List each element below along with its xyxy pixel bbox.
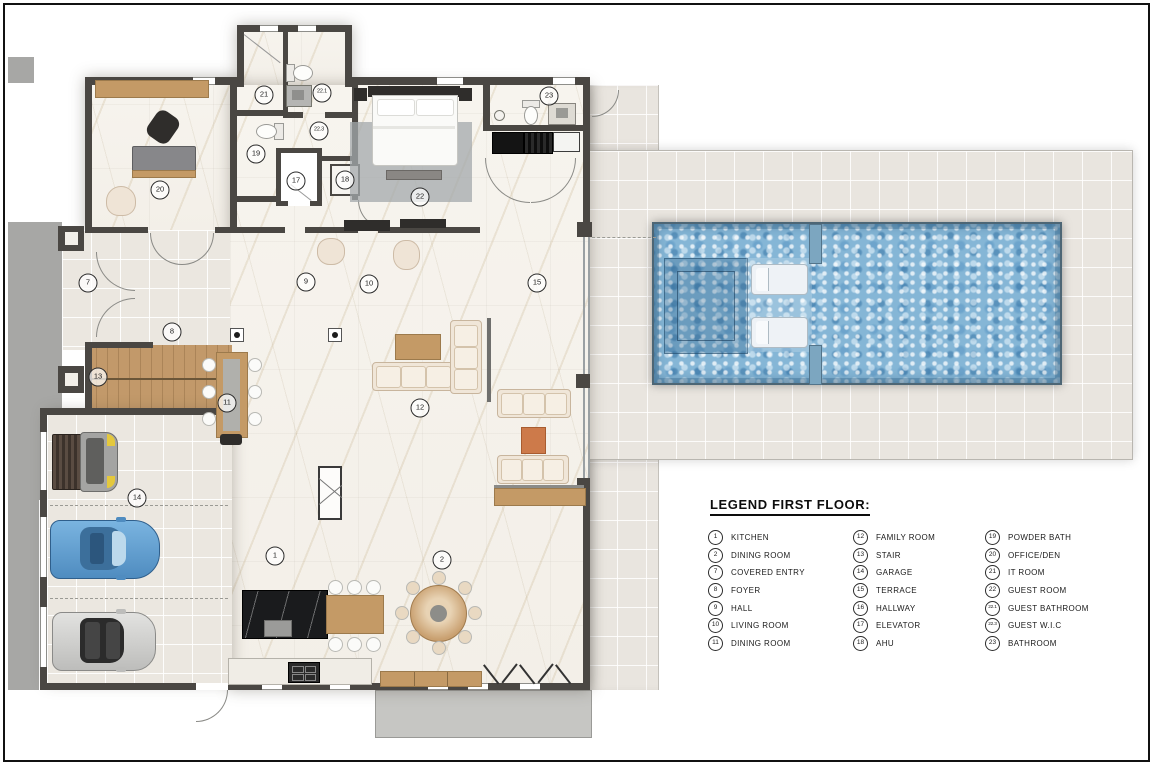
legend-item: 15TERRACE <box>853 582 935 600</box>
legend-badge: 15 <box>853 583 868 598</box>
legend-item: 2DINING ROOM <box>708 547 805 565</box>
guest-bed <box>368 86 460 166</box>
legend-badge: 17 <box>853 618 868 633</box>
room-marker-9: 9 <box>297 273 316 292</box>
legend-item: 22.3GUEST W.I.C <box>985 617 1089 635</box>
legend-badge: 22 <box>985 583 1000 598</box>
silver-car <box>52 612 154 669</box>
legend-item: 1KITCHEN <box>708 529 805 547</box>
legend-label: GUEST BATHROOM <box>1008 604 1089 613</box>
legend-label: LIVING ROOM <box>731 621 789 630</box>
legend-badge: 13 <box>853 548 868 563</box>
cooktop <box>288 662 320 683</box>
room-marker-23: 23 <box>540 87 559 106</box>
utility-truck <box>52 432 116 490</box>
legend-label: HALL <box>731 604 753 613</box>
room-marker-1: 1 <box>266 547 285 566</box>
room-marker-15: 15 <box>528 274 547 293</box>
floor-plan: LEGEND FIRST FLOOR: 1KITCHEN2DINING ROOM… <box>0 0 1154 765</box>
room-marker-11: 11 <box>218 394 237 413</box>
family-sofa <box>372 362 454 391</box>
room-marker-7: 7 <box>79 274 98 293</box>
legend-badge: 18 <box>853 636 868 651</box>
bath-faucet <box>494 110 505 121</box>
room-marker-21: 21 <box>255 86 274 105</box>
legend-badge: 19 <box>985 530 1000 545</box>
room-marker-2: 2 <box>433 551 452 570</box>
kitchen-table <box>326 595 384 634</box>
legend-item: 17ELEVATOR <box>853 617 935 635</box>
legend-badge: 12 <box>853 530 868 545</box>
terrace-coffee-table <box>521 427 546 454</box>
stair-stringer <box>92 378 228 380</box>
legend-label: AHU <box>876 639 894 648</box>
legend-badge: 16 <box>853 601 868 616</box>
room-marker-19: 19 <box>247 145 266 164</box>
guest-tv-console <box>400 219 446 228</box>
legend-item: 19POWDER BATH <box>985 529 1089 547</box>
bed-bench <box>386 170 442 180</box>
legend-item: 21IT ROOM <box>985 564 1089 582</box>
legend-item: 13STAIR <box>853 547 935 565</box>
legend-label: STAIR <box>876 551 901 560</box>
kitchen-cabinets <box>380 671 482 687</box>
terrace-sofa <box>497 455 569 484</box>
legend-badge: 10 <box>708 618 723 633</box>
legend-label: GUEST W.I.C <box>1008 621 1062 630</box>
legend-label: FOYER <box>731 586 761 595</box>
office-credenza <box>95 80 209 98</box>
pool-lounger <box>751 317 808 348</box>
legend-item: 11DINING ROOM <box>708 635 805 653</box>
legend-item: 18AHU <box>853 635 935 653</box>
legend-column-2: 12FAMILY ROOM13STAIR14GARAGE15TERRACE16H… <box>853 529 935 652</box>
room-marker-12: 12 <box>411 399 430 418</box>
legend-label: COVERED ENTRY <box>731 568 805 577</box>
legend-label: GARAGE <box>876 568 913 577</box>
living-tv-console <box>344 220 390 231</box>
legend-label: BATHROOM <box>1008 639 1057 648</box>
legend-badge: 11 <box>708 636 723 651</box>
legend-column-3: 19POWDER BATH20OFFICE/DEN21IT ROOM22GUES… <box>985 529 1089 652</box>
blue-sports-car <box>50 520 158 577</box>
legend-badge: 20 <box>985 548 1000 563</box>
legend-label: FAMILY ROOM <box>876 533 935 542</box>
room-marker-22.1: 22.1 <box>313 84 332 103</box>
room-marker-17: 17 <box>287 172 306 191</box>
spa <box>664 258 748 354</box>
legend-badge: 14 <box>853 565 868 580</box>
legend-label: KITCHEN <box>731 533 769 542</box>
concrete-patio <box>375 690 592 738</box>
outdoor-grill <box>524 132 553 154</box>
family-chaise <box>450 320 482 394</box>
room-marker-22.3: 22.3 <box>310 122 329 141</box>
legend-item: 22.1GUEST BATHROOM <box>985 599 1089 617</box>
legend-label: IT ROOM <box>1008 568 1045 577</box>
legend-item: 10LIVING ROOM <box>708 617 805 635</box>
legend-badge: 7 <box>708 565 723 580</box>
outdoor-counter <box>492 132 524 154</box>
legend-item: 8FOYER <box>708 582 805 600</box>
office-armchair <box>106 186 136 216</box>
legend-title: LEGEND FIRST FLOOR: <box>710 497 870 516</box>
legend-badge: 9 <box>708 601 723 616</box>
outdoor-cabinet <box>553 132 580 152</box>
legend-column-1: 1KITCHEN2DINING ROOM7COVERED ENTRY8FOYER… <box>708 529 805 652</box>
terrace-console <box>494 488 586 506</box>
island-sink <box>264 620 292 637</box>
legend-label: GUEST ROOM <box>1008 586 1067 595</box>
legend-label: POWDER BATH <box>1008 533 1071 542</box>
legend-label: DINING ROOM <box>731 551 791 560</box>
legend-label: HALLWAY <box>876 604 916 613</box>
legend-badge: 22.3 <box>985 618 1000 633</box>
sofa-back-table <box>395 334 441 360</box>
legend-badge: 8 <box>708 583 723 598</box>
legend-badge: 22.1 <box>985 601 1000 616</box>
room-marker-18: 18 <box>336 171 355 190</box>
legend-badge: 23 <box>985 636 1000 651</box>
room-marker-20: 20 <box>151 181 170 200</box>
legend-item: 9HALL <box>708 599 805 617</box>
room-marker-14: 14 <box>128 489 147 508</box>
legend-item: 7COVERED ENTRY <box>708 564 805 582</box>
room-marker-10: 10 <box>360 275 379 294</box>
legend-label: DINING ROOM <box>731 639 791 648</box>
living-armchair <box>317 238 345 265</box>
legend-badge: 1 <box>708 530 723 545</box>
swimming-pool <box>652 222 1062 385</box>
floor-stair <box>85 345 232 415</box>
living-armchair <box>393 240 420 270</box>
legend-badge: 21 <box>985 565 1000 580</box>
legend-item: 12FAMILY ROOM <box>853 529 935 547</box>
legend-item: 22GUEST ROOM <box>985 582 1089 600</box>
legend-item: 20OFFICE/DEN <box>985 547 1089 565</box>
legend-item: 14GARAGE <box>853 564 935 582</box>
pool-lounger <box>751 264 808 295</box>
room-marker-22: 22 <box>411 188 430 207</box>
driveway-lower <box>8 500 39 690</box>
legend-label: TERRACE <box>876 586 917 595</box>
pool-pier-bottom <box>809 345 822 385</box>
legend-label: ELEVATOR <box>876 621 921 630</box>
exterior-pad <box>8 57 34 83</box>
legend-item: 16HALLWAY <box>853 599 935 617</box>
legend-badge: 2 <box>708 548 723 563</box>
terrace-sofa <box>497 389 571 418</box>
room-marker-8: 8 <box>163 323 182 342</box>
pool-pier-top <box>809 224 822 264</box>
legend-label: OFFICE/DEN <box>1008 551 1060 560</box>
legend-item: 23BATHROOM <box>985 635 1089 653</box>
room-marker-13: 13 <box>89 368 108 387</box>
